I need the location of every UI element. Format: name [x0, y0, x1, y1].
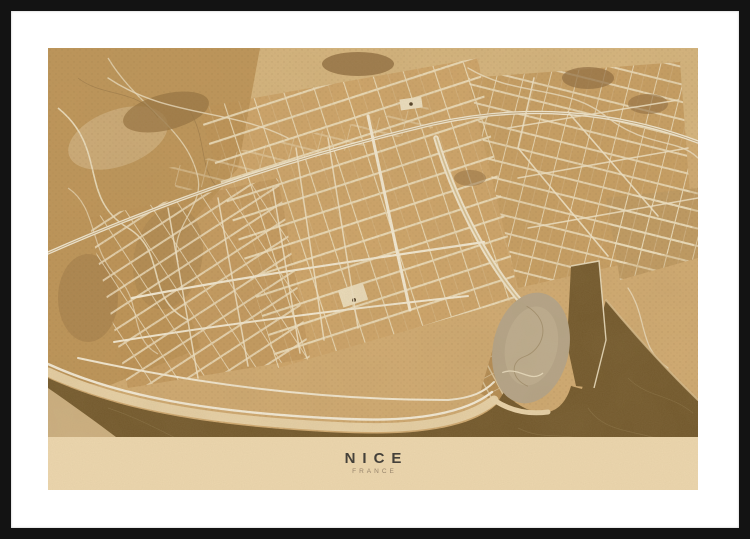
caption-grain — [48, 437, 698, 490]
paper-grain — [48, 48, 698, 490]
map-artwork — [48, 48, 698, 490]
poster: NICE FRANCE — [48, 48, 698, 490]
mat-board: NICE FRANCE — [11, 11, 739, 528]
framed-map-poster: NICE FRANCE — [0, 0, 750, 539]
